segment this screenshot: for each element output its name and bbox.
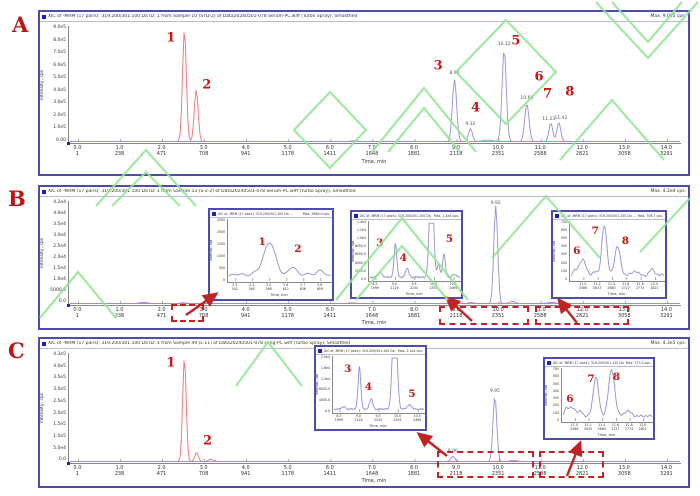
y-tick-label: 1.2e4 [357,229,366,232]
y-tick-label: 500 [219,267,225,270]
blue-trace [563,370,652,417]
inset-plot-c2: 678 [561,368,653,423]
trace-marker-icon [67,142,70,145]
x-tick: 12.02821 [576,145,589,158]
peak-number-label: 8 [565,86,574,99]
panel-label-b: B [8,186,26,211]
zoom-region-box-2 [539,451,604,478]
x-tick-scan: 471 [157,313,167,319]
x-axis-title: Time, min [561,433,652,437]
y-tick-label: 600 [561,229,567,232]
x-tick: 2.4565 [249,283,255,291]
y-tick-label: 100 [553,412,559,415]
x-tick-scan: 2586 [579,286,587,290]
blue-trace [229,243,331,276]
y-tick-label: 4000.0 [355,262,366,265]
peak-number-label: 7 [592,226,599,237]
y-tick-label: 300 [553,397,559,400]
x-tick: 4.0941 [241,307,251,320]
peak-number-label: 2 [294,243,301,254]
y-tick-label: 9.0e5 [53,26,66,31]
y-tick-label: 600 [553,375,559,378]
trace-marker-icon [67,462,70,465]
x-tick-scan: 238 [115,471,125,477]
peak-number-label: 1 [166,31,175,44]
y-tick-label: 1500 [217,243,225,246]
app-icon [547,361,551,365]
x-tick: 2.6612 [283,283,289,291]
x-tick-scan: 1999 [335,418,343,422]
x-tick-scan: 2633 [584,427,592,431]
y-tick-label: 5.0e5 [53,76,66,81]
x-tick: 10.52469 [413,414,421,422]
x-tick-scan: 1648 [366,151,379,157]
y-tick-label: 1.0e4 [53,278,66,283]
trace-svg [369,221,461,281]
y-tick-label: 0 [223,279,225,282]
x-tick-scan: 2116 [354,418,362,422]
x-tick: 9.52234 [410,282,418,290]
y-tick-label: 3.0e5 [53,388,66,393]
panel-label-a: A [12,12,28,37]
y-tick-label: 0.0 [59,300,66,305]
x-tick: 11.62727 [622,282,630,290]
x-tick: 14.03291 [660,145,673,158]
zoom-region-box-3 [535,306,629,325]
x-tick-scan: 708 [199,151,209,157]
x-tick: 11.82774 [636,282,644,290]
x-tick: 11.02586 [570,423,578,431]
max-intensity-label: Max. 2980.0 cps. [303,212,330,216]
x-tick: 12.02821 [650,282,658,290]
y-tick-label: 1000 [217,255,225,258]
window-title: XIC of -MRM (17 pairs): 319.200/301.100 … [561,214,636,218]
x-tick: 5.01178 [281,145,294,158]
retention-time-label: 9.32 [465,123,475,128]
x-axis-title: Time, min [569,292,664,296]
max-intensity-label: Max. 2.1e4 cps. [398,349,423,353]
y-axis-ticks: 7006005004003002001000 [548,368,559,422]
y-tick-label: 3.5e4 [53,223,66,228]
x-tick-scan: 1881 [408,313,421,319]
y-tick-label: 1.4e4 [357,221,366,224]
y-axis-ticks: 7006005004003002001000 [556,221,567,281]
y-tick-label: 500 [561,237,567,240]
x-tick: 11.02588 [534,145,547,158]
app-icon [555,214,559,218]
window-titlebar: XIC of -MRM (17 pairs): 319.200/301.100 … [545,359,653,367]
x-tick: 8.01881 [408,465,421,478]
x-tick-scan: 941 [241,313,251,319]
x-tick: 8.51999 [371,282,379,290]
trace-svg [228,219,332,282]
peak-number-label: 2 [202,78,211,91]
x-tick: 2.0471 [157,307,167,320]
y-tick-label: 100 [561,270,567,273]
x-tick: 2.5589 [266,283,272,291]
x-tick: 11.22633 [584,423,592,431]
x-tick-scan: 3291 [660,313,673,319]
y-tick-label: 8.0e5 [53,39,66,44]
retention-time-label: 10.12 [498,42,511,47]
peak-number-label: 1 [166,356,175,369]
x-tick-scan: 1999 [371,286,379,290]
x-tick-scan: 1178 [281,151,294,157]
x-tick: 3.0708 [199,145,209,158]
x-axis-title: Time, min [368,292,460,296]
inset-plot-c1: 345 [332,356,425,414]
max-intensity-label: Max. 1.4e4 cps. [434,214,459,218]
x-tick: 14.03291 [660,307,673,320]
y-tick-label: 0 [565,278,567,281]
window-titlebar: XIC of -MRM (17 pairs): 319.200/301.100 … [352,212,461,220]
y-tick-label: 1.0e5 [53,435,66,440]
x-tick-scan: 612 [283,287,289,291]
peak-number-label: 5 [446,234,453,245]
x-tick: 2.8659 [317,283,323,291]
y-tick-label: 200 [553,404,559,407]
x-tick: 13.03058 [618,465,631,478]
y-tick-label: 8000.0 [319,388,330,391]
y-tick-label: 2000 [217,231,225,234]
x-tick: 8.01881 [408,307,421,320]
y-tick-label: 700 [553,368,559,371]
x-tick-scan: 238 [115,151,125,157]
peak-number-label: 3 [376,237,383,248]
x-tick-scan: 3291 [660,471,673,477]
y-tick-label: 2.0e5 [53,114,66,119]
window-titlebar: XIC of -MRM (17 pairs): 319.200/301.100 … [316,347,425,355]
peak-number-label: 5 [408,389,415,400]
x-tick-scan: 2234 [410,286,418,290]
inset-plot-b1: 12 [227,219,332,283]
x-tick: 11.02586 [579,282,587,290]
x-tick-scan: 1 [73,151,81,157]
x-tick-scan: 2586 [570,427,578,431]
x-tick: 0.01 [73,145,81,158]
x-tick-scan: 3291 [660,151,673,157]
peak-number-label: 3 [434,59,443,72]
x-tick: 10.02351 [394,414,402,422]
x-tick: 9.02118 [450,145,463,158]
y-tick-label: 4.0e5 [53,89,66,94]
window-title: XIC of -MRM (17 pairs): 319.200/301.100 … [48,14,649,19]
x-tick-scan: 2118 [450,151,463,157]
trace-svg [570,221,665,281]
x-tick-scan: 2727 [622,286,630,290]
zoom-region-box-1 [437,451,534,478]
y-tick-label: 300 [561,253,567,256]
y-tick-label: 2.0e5 [53,412,66,417]
x-tick-scan: 2774 [625,427,633,431]
zoom-region-box-1 [171,304,204,322]
x-axis-ticks: 0.011.02382.04713.07084.09415.011786.014… [68,145,680,158]
y-tick-label: 0.0 [59,458,66,463]
x-tick-scan: 2821 [639,427,647,431]
inset-window-c2: XIC of -MRM (17 pairs): 319.200/301.100 … [543,357,655,440]
panel-a-window: XIC of -MRM (17 pairs): 319.200/301.100 … [38,10,690,176]
x-tick: 1.0238 [115,145,125,158]
retention-time-label: 9.95 [490,389,500,394]
x-tick-scan: 2351 [394,418,402,422]
y-tick-label: 4.0e5 [53,365,66,370]
x-tick-scan: 2821 [650,286,658,290]
panel-label-c: C [8,338,25,363]
y-tick-label: 700 [561,221,567,224]
y-tick-label: 200 [561,262,567,265]
max-intensity-label: Max. 706.7 cps. [638,214,663,218]
zoom-region-box-2 [439,306,529,325]
max-intensity-label: Max. 4.2e4 cps. [651,189,687,194]
x-tick: 3.0708 [199,465,209,478]
y-tick-label: 4.0e4 [53,212,66,217]
x-tick-scan: 2727 [611,427,619,431]
retention-time-label: 9.92 [491,201,501,206]
y-tick-label: 500 [553,383,559,386]
window-title: XIC of -MRM (17 pairs): 319.200/301.100 … [218,212,301,216]
x-tick-scan: 2680 [607,286,615,290]
panel-c-window: XIC of -MRM (17 pairs): 319.200/301.100 … [38,337,690,488]
y-tick-label: 4.2e4 [53,201,66,206]
y-tick-label: 400 [561,245,567,248]
x-tick: 4.0941 [241,145,251,158]
x-tick-scan: 2469 [449,286,457,290]
y-tick-label: 6.0e5 [53,64,66,69]
x-tick-scan: 1881 [408,151,421,157]
y-tick-label: 1.0e5 [53,126,66,131]
y-tick-label: 0.0 [325,410,330,413]
y-tick-label: 4000.0 [319,399,330,402]
window-title: XIC of -MRM (17 pairs): 319.200/301.100 … [48,189,649,194]
x-tick: 6.01411 [323,465,336,478]
x-tick: 13.03058 [618,145,631,158]
retention-time-label: 11.23 [542,117,555,122]
y-axis-ticks: 1.4e41.2e41.0e48000.06000.04000.02000.00… [355,221,366,281]
max-intensity-label: Max. 9.0e5 cps. [651,14,687,19]
y-tick-label: 1.5e5 [53,423,66,428]
x-tick-scan: 1 [73,313,81,319]
x-tick-scan: 1648 [366,313,379,319]
x-tick: 8.51999 [335,414,343,422]
x-tick: 7.01648 [366,307,379,320]
retention-time-label: 11.42 [554,117,567,122]
x-tick: 4.0941 [241,465,251,478]
x-tick-scan: 2821 [576,151,589,157]
peak-number-label: 5 [511,35,520,48]
window-titlebar: XIC of -MRM (17 pairs): 319.200/301.100 … [40,187,688,197]
y-tick-label: 2.0e4 [321,356,330,359]
y-tick-label: 2500 [217,219,225,222]
inset-plot-b3: 678 [569,221,665,282]
app-icon [42,190,46,194]
inset-plot-b2: 345 [368,221,461,282]
app-icon [318,349,322,353]
y-tick-label: 6000.0 [355,253,366,256]
x-tick-scan: 1178 [281,313,294,319]
peak-number-label: 4 [365,382,372,393]
x-tick-scan: 565 [249,287,255,291]
x-axis-title: Time, min [227,293,331,297]
y-tick-label: 1.0e4 [357,237,366,240]
y-tick-label: 1.5e4 [53,267,66,272]
y-tick-label: 400 [553,390,559,393]
x-tick-scan: 2116 [390,286,398,290]
x-tick: 7.01648 [366,465,379,478]
x-tick: 11.22633 [593,282,601,290]
x-tick-scan: 2633 [593,286,601,290]
x-tick: 6.01411 [323,145,336,158]
x-tick: 9.52234 [374,414,382,422]
x-axis-title: Time, min [68,159,680,165]
x-tick: 11.42680 [598,423,606,431]
red-trace [70,33,680,142]
inset-window-c1: XIC of -MRM (17 pairs): 319.200/301.100 … [314,345,427,431]
y-tick-label: 3.0e5 [53,101,66,106]
x-tick-scan: 2351 [430,286,438,290]
x-tick: 5.01178 [281,307,294,320]
x-tick: 1.0238 [115,465,125,478]
inset-window-b2: XIC of -MRM (17 pairs): 319.200/301.100 … [350,210,463,299]
x-tick: 14.03291 [660,465,673,478]
x-tick: 12.02821 [639,423,647,431]
y-tick-label: 7.0e5 [53,51,66,56]
y-axis-ticks: 4.3e54.0e53.5e53.0e52.5e52.0e51.5e51.0e5… [48,353,66,463]
y-axis-ticks: 9.0e58.0e57.0e56.0e55.0e54.0e53.0e52.0e5… [48,26,66,143]
x-tick: 10.52469 [449,282,457,290]
panel-b-window: XIC of -MRM (17 pairs): 319.200/301.100 … [38,185,690,330]
x-tick-scan: 708 [199,471,209,477]
peak-number-label: 7 [543,88,552,101]
app-icon [212,212,216,216]
blue-trace [571,226,664,276]
y-tick-label: 3.5e5 [53,376,66,381]
x-tick-scan: 2774 [636,286,644,290]
blue-trace [70,53,680,142]
x-tick: 2.3542 [232,283,238,291]
y-axis-ticks: 2.0e41.6e41.2e48000.04000.00.0 [319,356,330,413]
chromatogram-plot-a: 8.949.3210.1210.6611.2311.4212345678 [68,26,681,144]
peak-number-label: 8 [622,236,629,247]
trace-svg [562,368,653,422]
x-tick-scan: 1178 [281,471,294,477]
y-tick-label: 2000.0 [355,270,366,273]
x-tick-scan: 2234 [374,418,382,422]
x-tick: 9.02116 [354,414,362,422]
peak-number-label: 6 [566,394,573,405]
app-icon [42,342,46,346]
x-tick: 0.01 [73,307,81,320]
y-axis-ticks: 25002000150010005000 [214,219,225,282]
x-tick-scan: 1411 [323,313,336,319]
peak-number-label: 6 [535,71,544,84]
peak-number-label: 6 [573,246,580,257]
x-tick: 9.02116 [390,282,398,290]
trace-svg [69,26,681,143]
x-tick: 7.01648 [366,145,379,158]
x-tick-scan: 1648 [366,471,379,477]
x-tick: 10.02351 [430,282,438,290]
x-tick-scan: 2469 [413,418,421,422]
inset-window-b1: XIC of -MRM (17 pairs): 319.200/301.100 … [208,208,334,301]
y-tick-label: 5.0e4 [53,447,66,452]
x-tick: 10.02351 [492,145,505,158]
y-tick-label: 0.0 [361,278,366,281]
x-tick: 5.01178 [281,465,294,478]
x-tick: 11.82774 [625,423,633,431]
x-axis-title: Time, min [68,478,680,484]
window-title: XIC of -MRM (17 pairs): 319.200/301.100 … [324,349,396,353]
peak-number-label: 4 [471,101,480,114]
window-titlebar: XIC of -MRM (17 pairs): 319.200/301.100 … [40,12,688,22]
x-tick-scan: 542 [232,287,238,291]
x-tick-scan: 1881 [408,471,421,477]
y-tick-label: 2.5e5 [53,400,66,405]
y-tick-label: 8000.0 [355,245,366,248]
y-tick-label: 2.5e4 [53,245,66,250]
app-icon [354,214,358,218]
peak-number-label: 7 [587,374,594,385]
window-titlebar: XIC of -MRM (17 pairs): 319.200/301.100 … [210,210,332,218]
peak-number-label: 1 [258,237,265,248]
window-title: XIC of -MRM (17 pairs): 319.200/301.100 … [360,214,432,218]
x-tick-scan: 3058 [618,151,631,157]
y-tick-label: 1.6e4 [321,367,330,370]
blue-trace [370,223,460,278]
retention-time-label: 8.94 [449,72,459,77]
max-intensity-label: Max. 4.3e5 cps. [651,341,687,346]
y-tick-label: 5000.0 [50,289,66,294]
trace-marker-icon [67,304,70,307]
x-tick: 2.0471 [157,465,167,478]
x-tick-scan: 2680 [598,427,606,431]
x-tick: 1.0238 [115,307,125,320]
inset-window-b3: XIC of -MRM (17 pairs): 319.200/301.100 … [551,210,667,299]
x-tick: 2.7636 [300,283,306,291]
x-tick: 8.01881 [408,145,421,158]
peak-number-label: 2 [203,435,212,448]
retention-time-label: 10.66 [520,97,533,102]
x-tick: 11.62727 [611,423,619,431]
y-tick-label: 4.3e5 [53,353,66,358]
x-tick-scan: 1411 [323,151,336,157]
x-tick-scan: 238 [115,313,125,319]
x-tick-scan: 2351 [492,151,505,157]
window-titlebar: XIC of -MRM (17 pairs): 319.200/301.100 … [553,212,665,220]
x-tick-scan: 471 [157,471,167,477]
x-tick-scan: 471 [157,151,167,157]
x-tick-scan: 941 [241,471,251,477]
x-axis-title: Time, min [332,424,424,428]
y-tick-label: 3.0e4 [53,234,66,239]
window-title: XIC of -MRM (17 pairs): 319.200/301.100 … [553,361,624,365]
x-tick-scan: 636 [300,287,306,291]
x-tick-scan: 3058 [618,471,631,477]
y-tick-label: 0 [557,419,559,422]
x-tick-scan: 1 [73,471,81,477]
x-tick-scan: 659 [317,287,323,291]
peak-number-label: 3 [344,363,351,374]
x-tick: 2.0471 [157,145,167,158]
max-intensity-label: Max. 773.3 cps. [626,361,651,365]
y-tick-label: 2.0e4 [53,256,66,261]
app-icon [42,15,46,19]
y-tick-label: 0.00 [56,139,66,144]
x-tick-scan: 1411 [323,471,336,477]
peak-number-label: 8 [613,372,620,383]
y-axis-ticks: 4.2e44.0e43.5e43.0e42.5e42.0e41.5e41.0e4… [48,201,66,305]
x-tick-scan: 589 [266,287,272,291]
peak-number-label: 4 [400,253,407,264]
